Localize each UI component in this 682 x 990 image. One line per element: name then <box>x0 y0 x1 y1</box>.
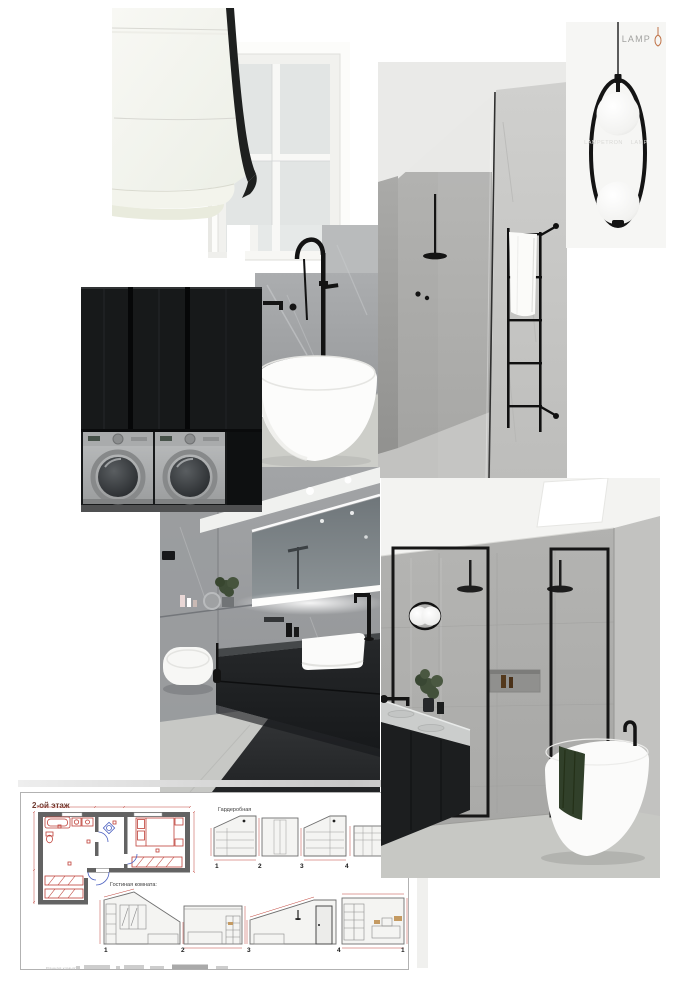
lamp-logo-icon <box>653 27 663 49</box>
photo-skylight-bathroom <box>381 478 660 878</box>
photo-pendant-lamp: LAMP LAMPETRON LAMP <box>566 22 666 248</box>
round-mirror <box>204 593 220 609</box>
living-room-label: Гостиная комната: <box>110 882 157 888</box>
wall-hung-toilet <box>163 647 213 695</box>
plan-title: 2-ой этаж <box>32 801 70 810</box>
moodboard: LAMP LAMPETRON LAMP <box>0 0 682 990</box>
elevation-number: 1 <box>215 863 219 870</box>
photo-roman-blind <box>112 8 350 258</box>
elevation-number: 4 <box>337 947 341 954</box>
watermark-text: LAMP <box>631 140 648 146</box>
green-towel <box>559 746 585 820</box>
floor-strip <box>81 505 262 512</box>
cutoff-bathroom-row: Ванная комната <box>46 965 228 972</box>
elevation-number: 2 <box>181 947 185 954</box>
elevation-number: 1 <box>401 947 405 954</box>
photo-shower-niche <box>378 62 567 478</box>
elevation-number: 3 <box>247 947 251 954</box>
elevation-number: 1 <box>104 947 108 954</box>
glass-sphere-top <box>597 93 640 136</box>
photo-laundry-stack <box>81 287 262 512</box>
scan-shadow-strip <box>18 780 410 787</box>
stone-column <box>378 176 398 478</box>
washing-machine-right <box>155 432 225 504</box>
elevation-number: 4 <box>345 863 349 870</box>
center-watermarks: LAMPETRON LAMP <box>566 140 666 146</box>
glass-sphere-bottom <box>597 182 640 225</box>
white-towel <box>509 232 537 316</box>
skylight <box>537 478 608 527</box>
lamp-watermark: LAMP <box>622 34 651 44</box>
scan-edge-artifact <box>417 878 428 968</box>
wall-niche <box>490 670 540 692</box>
bathroom-label: Ванная комната <box>46 966 80 971</box>
floor-plan-sheet: 2-ой этаж <box>18 780 410 978</box>
photo-vanity-bathroom <box>160 467 380 792</box>
wardrobe-label: Гардеробная <box>218 807 251 813</box>
elevation-number: 3 <box>300 863 304 870</box>
soap-bottle <box>286 623 292 637</box>
flush-plate <box>162 551 175 560</box>
appliance-panel <box>227 432 262 505</box>
washing-machine-left <box>83 432 153 504</box>
elevation-number: 2 <box>258 863 262 870</box>
pendant-lamp <box>591 22 645 227</box>
watermark-text: LAMPETRON <box>584 140 623 146</box>
vessel-sink <box>302 633 365 670</box>
